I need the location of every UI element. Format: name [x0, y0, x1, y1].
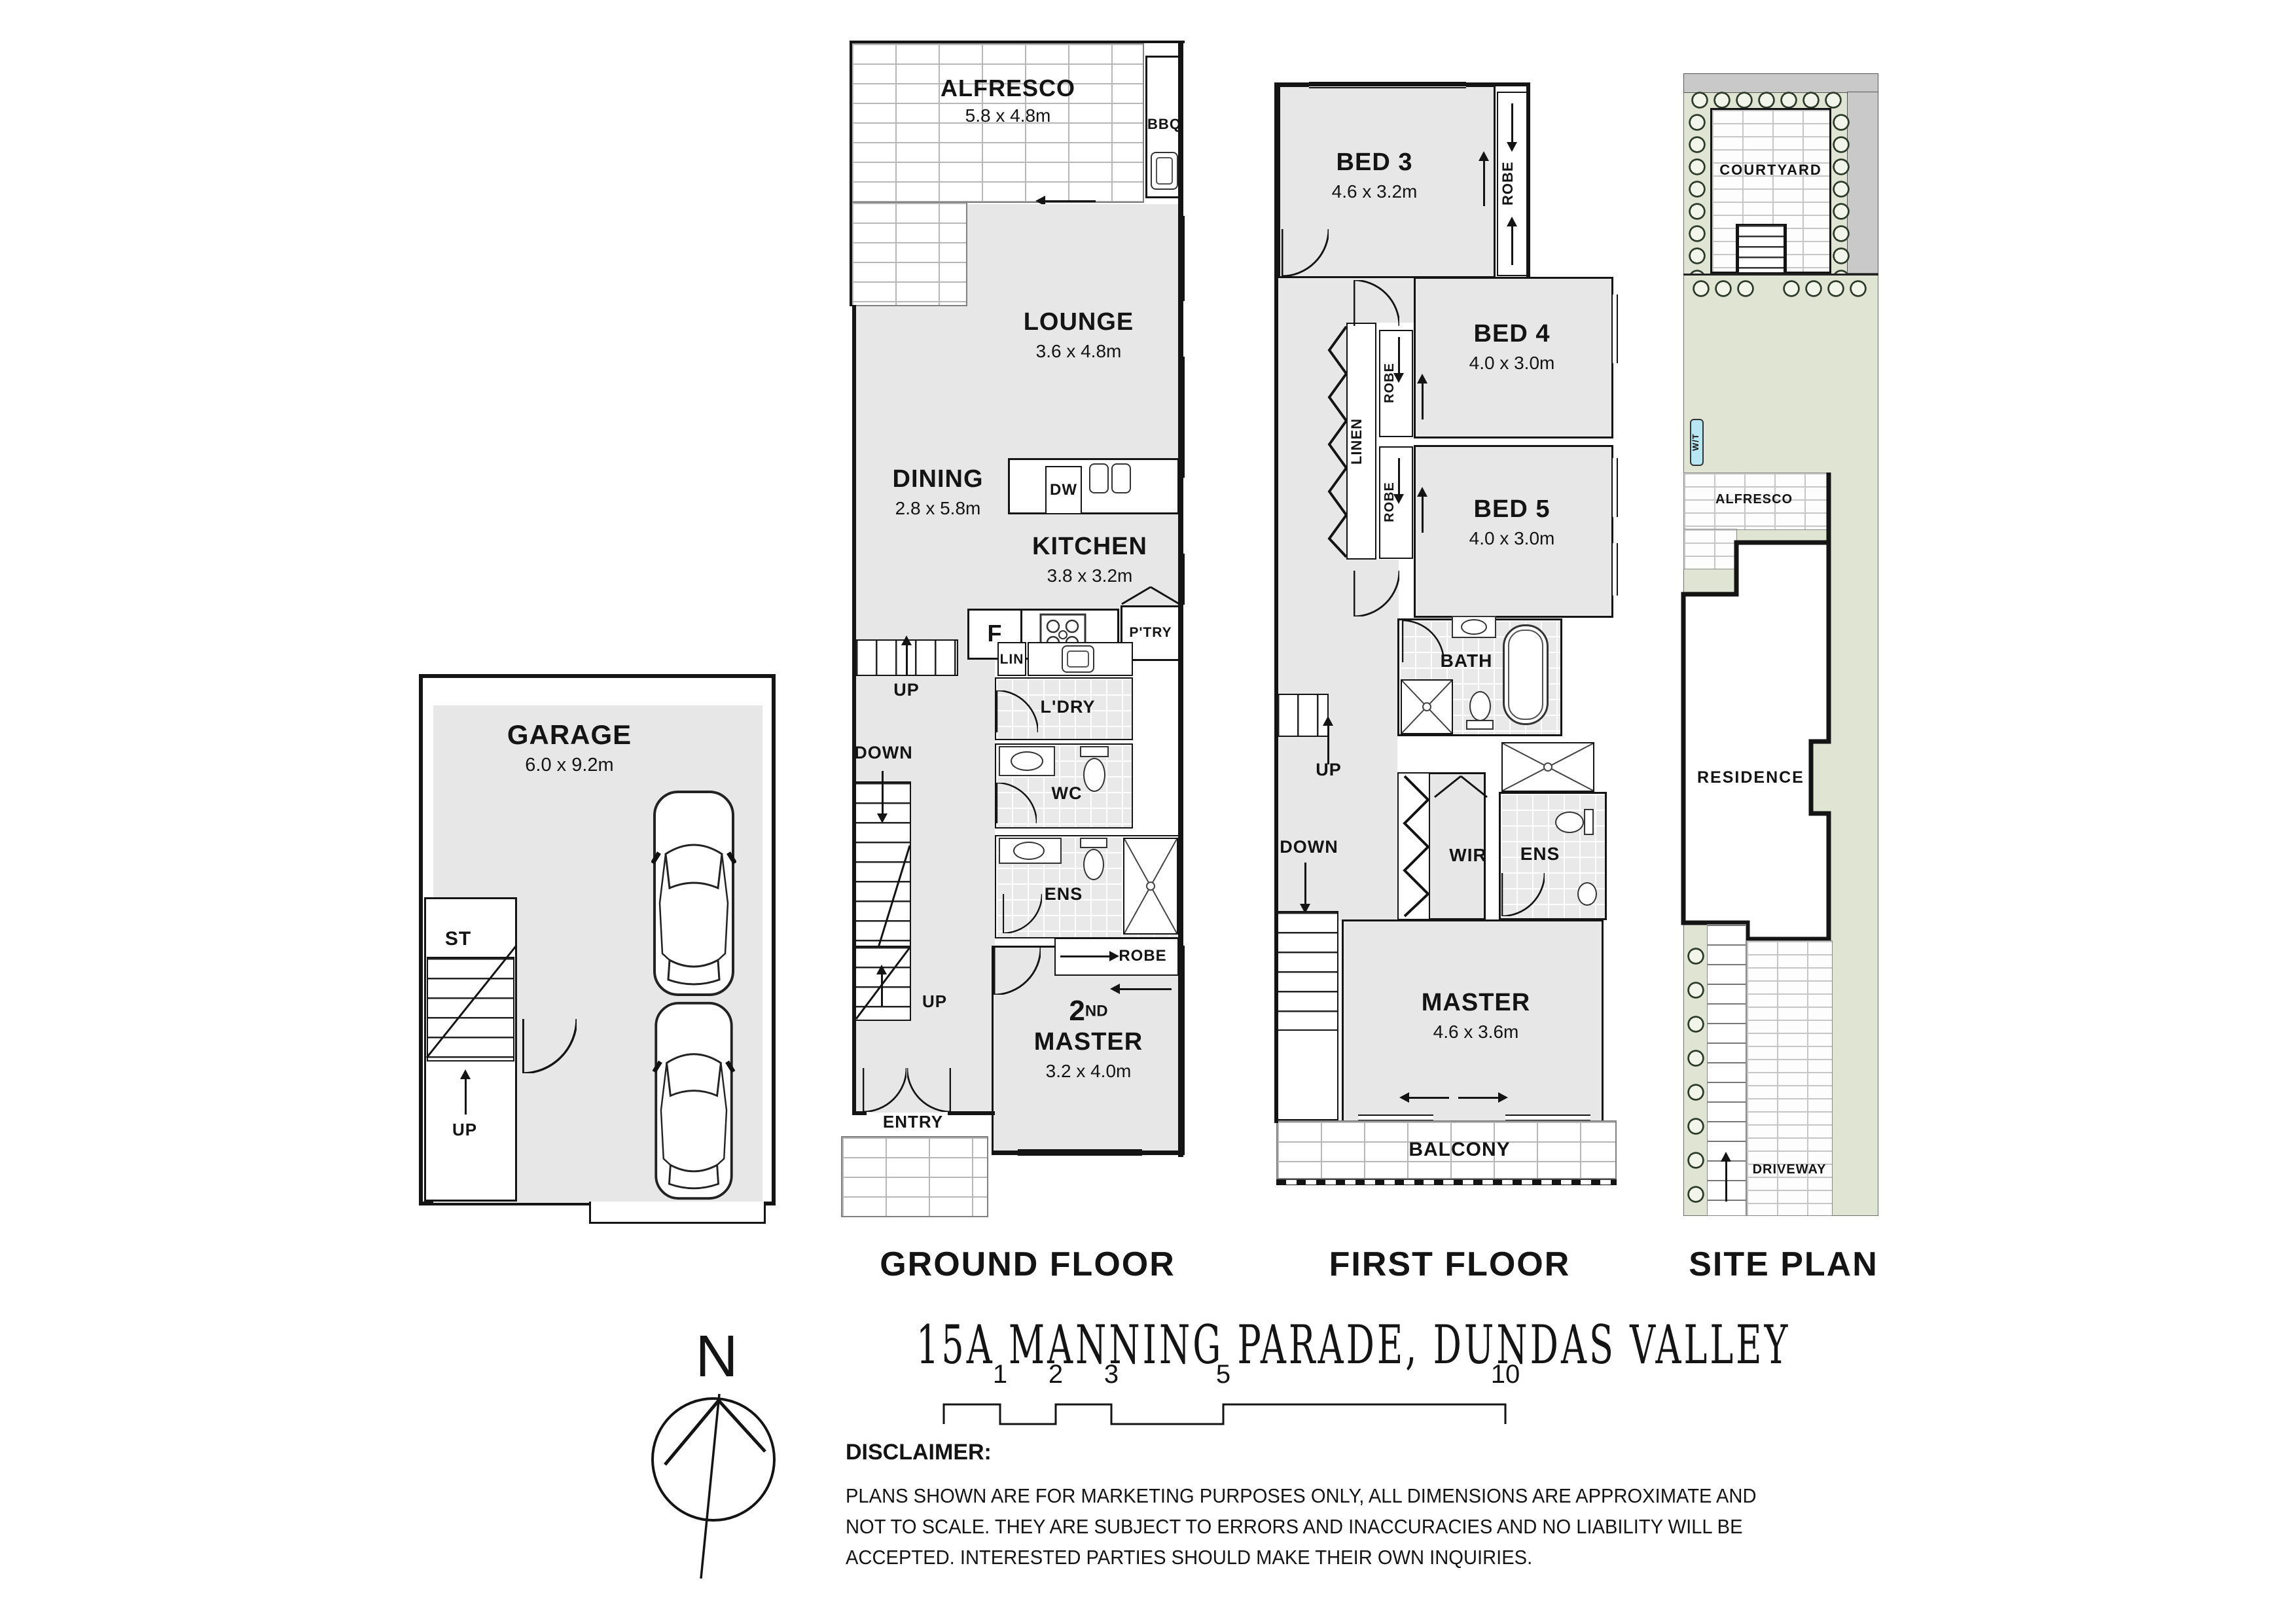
wall	[1274, 82, 1278, 1123]
wall	[851, 41, 1185, 43]
stairs-up-arrow	[906, 645, 908, 675]
scale-tick-2: 2	[1036, 1360, 1075, 1389]
second-master-dim: 3.2 x 4.0m	[1007, 1061, 1170, 1082]
toilet-bowl	[1555, 811, 1584, 833]
tree-row-icon	[1780, 277, 1869, 300]
door-arc-icon	[1354, 280, 1399, 326]
bed3-label: BED 3 4.6 x 3.2m	[1293, 149, 1456, 202]
scale-tick-5: 5	[1204, 1360, 1243, 1389]
scale-tick-3: 3	[1092, 1360, 1131, 1389]
toilet-bowl	[1083, 849, 1104, 880]
ens-label-ground: ENS	[1034, 885, 1093, 904]
door-arc-icon	[996, 783, 1037, 823]
robe-arrow	[1511, 103, 1513, 143]
wall	[852, 305, 856, 1114]
scale-tick-1: 1	[980, 1360, 1020, 1389]
toilet-bowl	[1469, 691, 1491, 721]
wir-zigzag-icon	[1401, 774, 1431, 919]
robe-arrow	[1398, 458, 1400, 495]
dining-label: DINING 2.8 x 5.8m	[856, 466, 1020, 519]
bed3-dim: 4.6 x 3.2m	[1293, 182, 1456, 202]
bed4-name: BED 4	[1430, 321, 1594, 348]
toilet-tank	[1466, 720, 1494, 730]
wir-doors-icon	[1433, 774, 1488, 798]
car-icon	[651, 789, 736, 998]
tree-col-icon	[1686, 111, 1708, 274]
disclaimer-line: ACCEPTED. INTERESTED PARTIES SHOULD MAKE…	[846, 1542, 1707, 1573]
alfresco-label: ALFRESCO 5.8 x 4.8m	[903, 75, 1113, 126]
water-tank-label: W/T	[1691, 423, 1702, 462]
bed3-name: BED 3	[1293, 149, 1456, 177]
toilet-bowl	[1083, 758, 1105, 792]
ens-label-first: ENS	[1504, 844, 1576, 865]
entry-door-icon	[863, 1068, 906, 1112]
site-plan-title: SITE PLAN	[1682, 1245, 1885, 1284]
bathtub-inner	[1508, 630, 1543, 720]
ground-floor-title: GROUND FLOOR	[851, 1245, 1204, 1284]
master-name: MASTER	[1394, 990, 1558, 1017]
wall	[852, 1111, 867, 1115]
stairs-down	[1276, 911, 1338, 1031]
linen-bifold-icon	[1327, 323, 1348, 560]
garage-up-label: UP	[445, 1120, 484, 1139]
ens-basin-bowl	[1013, 842, 1045, 860]
compass-icon	[622, 1374, 818, 1590]
wall	[1526, 82, 1530, 279]
alfresco-paving	[851, 202, 967, 306]
disclaimer-heading: DISCLAIMER:	[846, 1440, 992, 1465]
door-arc-icon	[1501, 873, 1545, 916]
shower	[1123, 838, 1178, 935]
tree-col-icon	[1685, 945, 1707, 1216]
bed5-dim: 4.0 x 3.0m	[1430, 529, 1594, 549]
wall	[1276, 82, 1530, 86]
door-arc-icon	[1402, 620, 1444, 662]
robe-arrow	[1511, 226, 1513, 265]
scale-bar-icon	[929, 1394, 1532, 1427]
wir-label: WIR	[1432, 846, 1504, 866]
garage-dim: 6.0 x 9.2m	[445, 755, 694, 776]
dining-name: DINING	[856, 466, 1020, 493]
second-master-name: MASTER	[1007, 1029, 1170, 1056]
scale-tick-10: 10	[1486, 1360, 1525, 1389]
down-label-first: DOWN	[1276, 838, 1342, 857]
entry-up-arrow	[881, 974, 883, 1007]
second-master-num: 2ND	[1007, 995, 1170, 1027]
wc-basin-bowl	[1011, 751, 1043, 771]
disclaimer-text: PLANS SHOWN ARE FOR MARKETING PURPOSES O…	[846, 1480, 1707, 1573]
sliding-door-arrow	[1045, 200, 1096, 202]
door-arc-icon	[1354, 571, 1399, 616]
residence-label: RESIDENCE	[1697, 769, 1799, 787]
bed4-robe-label: ROBE	[1382, 347, 1410, 419]
balcony-railing	[1276, 1179, 1617, 1185]
robe-arrow	[1398, 337, 1400, 374]
window	[1611, 458, 1618, 517]
floorplan-sheet: { "title": "15A MANNING PARADE, DUNDAS V…	[0, 0, 2296, 1623]
wall	[850, 41, 852, 306]
wall	[1178, 41, 1183, 1157]
stairs-up	[1276, 694, 1329, 737]
site-alfresco-label: ALFRESCO	[1708, 492, 1800, 507]
tree-row-icon	[1690, 277, 1757, 300]
master-dim: 4.6 x 3.6m	[1394, 1022, 1558, 1043]
courtyard-label: COURTYARD	[1713, 162, 1828, 178]
kitchen-name: KITCHEN	[1008, 533, 1172, 561]
toilet-tank	[1080, 838, 1107, 848]
down-label: DOWN	[851, 743, 916, 763]
robe-arrow	[1422, 496, 1424, 533]
bed5-name: BED 5	[1430, 496, 1594, 524]
pantry-label: P'TRY	[1121, 625, 1181, 640]
door-arc-icon	[994, 948, 1041, 995]
alfresco-dim: 5.8 x 4.8m	[903, 106, 1113, 126]
linen-label: LIN	[994, 652, 1030, 667]
stair-void	[1276, 1031, 1338, 1120]
garage-up-arrow	[465, 1079, 467, 1115]
robe-arrow	[1119, 988, 1172, 990]
driveway-label: DRIVEWAY	[1744, 1162, 1835, 1177]
bed3-robe-label: ROBE	[1499, 141, 1526, 226]
toilet-tank	[1584, 809, 1594, 835]
walkway-arrow	[1725, 1161, 1727, 1202]
residence-outline	[1676, 458, 1885, 955]
stairs-up-arrow	[1327, 725, 1329, 764]
lounge-dim: 3.6 x 4.8m	[997, 342, 1160, 362]
bbq-sink	[1151, 152, 1178, 190]
garage-label: GARAGE 6.0 x 9.2m	[445, 720, 694, 779]
wall	[948, 1111, 995, 1115]
pantry-door-icon	[1121, 584, 1181, 605]
second-master-label: 2ND MASTER 3.2 x 4.0m	[1007, 995, 1170, 1082]
stairs-cut-line	[425, 942, 517, 1060]
door-arc-icon	[522, 1019, 577, 1073]
sliding-door-arrow	[1408, 1097, 1449, 1099]
disclaimer-line: PLANS SHOWN ARE FOR MARKETING PURPOSES O…	[846, 1480, 1707, 1511]
entry-label: ENTRY	[870, 1113, 956, 1132]
lounge-name: LOUNGE	[997, 309, 1160, 336]
disclaimer-line: NOT TO SCALE. THEY ARE SUBJECT TO ERRORS…	[846, 1511, 1707, 1542]
window	[1611, 543, 1618, 596]
bath-vanity-bowl	[1461, 619, 1487, 635]
entry-door-icon	[907, 1068, 951, 1112]
scale-bar: 1 2 3 5 10	[929, 1360, 1532, 1432]
garage-door-recess	[589, 1202, 766, 1224]
garage-name: GARAGE	[445, 720, 694, 750]
sliding-door-arrow	[1458, 1097, 1499, 1099]
entry-porch	[841, 1136, 988, 1217]
alfresco-name: ALFRESCO	[903, 75, 1113, 101]
site-fence	[1683, 274, 1878, 276]
door-arc-icon	[1003, 894, 1042, 933]
lounge-floor	[967, 204, 1180, 308]
kitchen-label: KITCHEN 3.8 x 3.2m	[1008, 533, 1172, 586]
ens-shower	[1501, 742, 1594, 792]
kitchen-dim: 3.8 x 3.2m	[1008, 566, 1172, 586]
bed4-label: BED 4 4.0 x 3.0m	[1430, 321, 1594, 374]
robe-arrow	[1060, 955, 1110, 957]
up-label: UP	[880, 681, 933, 700]
island-sink	[1111, 463, 1131, 493]
ens-basin	[1577, 882, 1597, 906]
entry-up-label: UP	[915, 992, 954, 1011]
robe-arrow	[1422, 383, 1424, 419]
toilet-tank	[1080, 746, 1109, 757]
master-label: MASTER 4.6 x 3.6m	[1394, 990, 1558, 1043]
stairs-down-arrow	[882, 771, 884, 814]
up-label-first: UP	[1306, 760, 1352, 780]
courtyard-steps	[1736, 224, 1787, 272]
door-arc-icon	[1282, 229, 1329, 276]
car-icon	[651, 1000, 736, 1202]
window	[1611, 294, 1618, 363]
island-sink	[1089, 463, 1109, 493]
lounge-label: LOUNGE 3.6 x 4.8m	[997, 309, 1160, 362]
tree-col-icon	[1830, 111, 1852, 274]
wall	[992, 1150, 1185, 1155]
bed4-dim: 4.0 x 3.0m	[1430, 353, 1594, 374]
stairs-down-arrow	[1304, 863, 1306, 904]
first-floor-title: FIRST FLOOR	[1276, 1245, 1623, 1284]
shower	[1401, 679, 1453, 734]
landing-floor	[1278, 726, 1397, 921]
bed5-label: BED 5 4.0 x 3.0m	[1430, 496, 1594, 549]
dishwasher-label: DW	[1045, 482, 1082, 499]
laundry-sink	[1062, 645, 1094, 673]
balcony-label: BALCONY	[1388, 1139, 1532, 1160]
dining-dim: 2.8 x 5.8m	[856, 499, 1020, 519]
linen-label: LINEN	[1348, 393, 1374, 491]
stairs-cut-line	[855, 946, 911, 1021]
door-arc-icon	[996, 690, 1038, 732]
robe-arrow	[1483, 160, 1485, 206]
